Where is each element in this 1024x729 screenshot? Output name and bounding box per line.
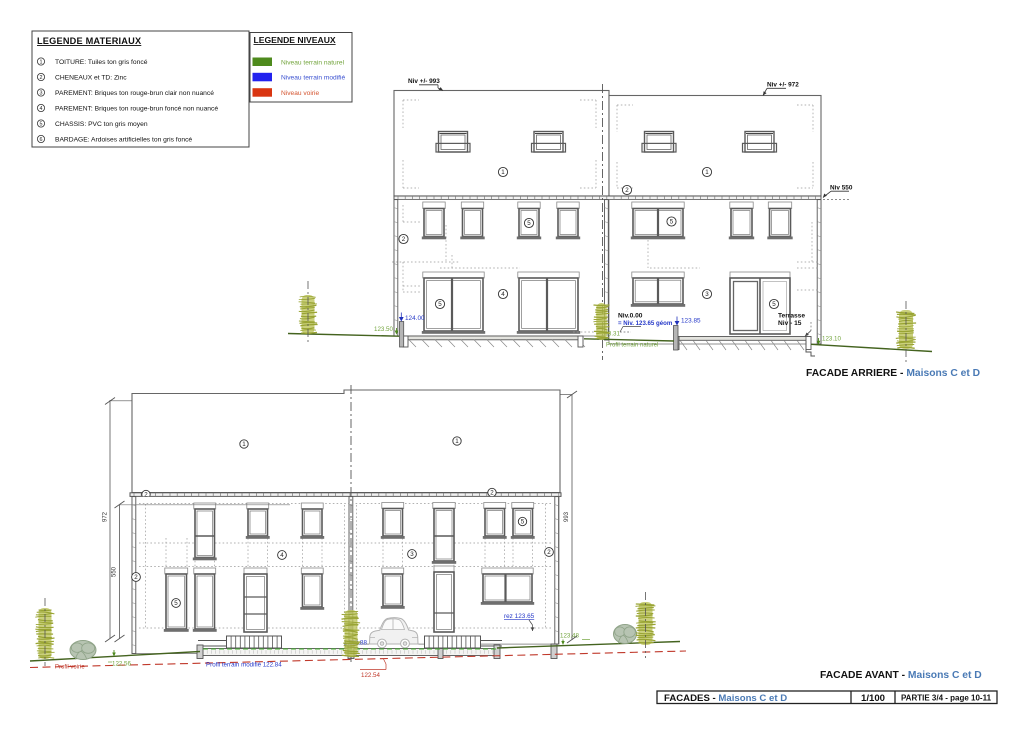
- svg-text:5: 5: [670, 219, 674, 226]
- svg-text:2: 2: [134, 574, 138, 581]
- svg-text:LEGENDE MATERIAUX: LEGENDE MATERIAUX: [37, 36, 142, 46]
- svg-text:2: 2: [625, 187, 629, 194]
- svg-text:5: 5: [527, 220, 531, 227]
- svg-text:FACADES - Maisons C et D: FACADES - Maisons C et D: [664, 693, 787, 704]
- svg-text:1: 1: [455, 438, 459, 445]
- svg-text:2: 2: [402, 236, 406, 243]
- svg-text:2: 2: [547, 549, 551, 556]
- svg-text:2: 2: [490, 490, 494, 497]
- svg-text:LEGENDE NIVEAUX: LEGENDE NIVEAUX: [254, 35, 336, 45]
- svg-text:4: 4: [280, 552, 284, 559]
- svg-text:123.50: 123.50: [374, 326, 393, 333]
- svg-text:BARDAGE: Ardoises artificielle: BARDAGE: Ardoises artificielles ton gris…: [55, 136, 192, 143]
- svg-text:124.00: 124.00: [405, 315, 425, 322]
- svg-text:3: 3: [40, 91, 43, 97]
- svg-text:5: 5: [521, 519, 525, 526]
- svg-text:5: 5: [40, 122, 43, 128]
- svg-text:FACADE AVANT - Maisons C et D: FACADE AVANT - Maisons C et D: [820, 670, 982, 681]
- svg-text:122.54: 122.54: [361, 672, 380, 679]
- svg-text:Niveau terrain naturel: Niveau terrain naturel: [281, 59, 345, 66]
- svg-text:3: 3: [705, 291, 709, 298]
- svg-text:6: 6: [40, 137, 43, 143]
- svg-text:CHENEAUX et TD: Zinc: CHENEAUX et TD: Zinc: [55, 74, 127, 81]
- svg-text:1: 1: [501, 169, 505, 176]
- svg-text:PAREMENT: Briques ton rouge-br: PAREMENT: Briques ton rouge-brun foncé n…: [55, 105, 218, 112]
- svg-text:993: 993: [564, 511, 570, 522]
- svg-text:Terrasse: Terrasse: [778, 313, 805, 320]
- svg-text:Niv +/- 993: Niv +/- 993: [408, 78, 440, 85]
- svg-text:Profil terrain naturel: Profil terrain naturel: [606, 343, 658, 349]
- svg-text:1: 1: [242, 441, 246, 448]
- svg-text:1/100: 1/100: [861, 693, 885, 704]
- svg-text:122.56: 122.56: [112, 661, 131, 668]
- svg-text:CHASSIS: PVC ton gris moyen: CHASSIS: PVC ton gris moyen: [55, 121, 148, 128]
- svg-text:1: 1: [40, 60, 43, 66]
- svg-text:Profil voirie: Profil voirie: [55, 665, 85, 671]
- svg-text:3: 3: [410, 551, 414, 558]
- svg-text:FACADE ARRIERE - Maisons C et: FACADE ARRIERE - Maisons C et D: [806, 368, 980, 379]
- svg-text:4: 4: [501, 291, 505, 298]
- svg-text:PAREMENT: Briques ton rouge-br: PAREMENT: Briques ton rouge-brun clair n…: [55, 90, 214, 97]
- svg-text:Niveau voirie: Niveau voirie: [281, 90, 319, 97]
- svg-text:5: 5: [438, 301, 442, 308]
- svg-text:972: 972: [103, 511, 109, 522]
- svg-text:1: 1: [705, 169, 709, 176]
- svg-text:rez 123.65: rez 123.65: [504, 613, 535, 620]
- svg-text:= Niv. 123.65 géom: = Niv. 123.65 géom: [618, 320, 673, 327]
- svg-text:Niv - 15: Niv - 15: [778, 320, 802, 327]
- svg-text:2: 2: [40, 75, 43, 81]
- svg-text:PARTIE 3/4 - page 10-11: PARTIE 3/4 - page 10-11: [901, 694, 992, 703]
- svg-text:Niv +/- 972: Niv +/- 972: [767, 82, 799, 89]
- svg-text:Profil terrain modifié 122.84: Profil terrain modifié 122.84: [206, 662, 282, 669]
- svg-text:Niv.0.00: Niv.0.00: [618, 313, 643, 320]
- svg-text:5: 5: [174, 600, 178, 607]
- svg-text:123.85: 123.85: [681, 318, 701, 325]
- svg-text:Niv 550: Niv 550: [830, 185, 853, 192]
- svg-text:Niveau terrain modifié: Niveau terrain modifié: [281, 75, 345, 82]
- svg-text:5: 5: [772, 301, 776, 308]
- svg-text:123.10: 123.10: [822, 336, 841, 343]
- svg-text:550: 550: [112, 566, 118, 577]
- svg-text:4: 4: [40, 106, 43, 112]
- svg-text:TOITURE: Tuiles ton gris foncé: TOITURE: Tuiles ton gris foncé: [55, 59, 148, 66]
